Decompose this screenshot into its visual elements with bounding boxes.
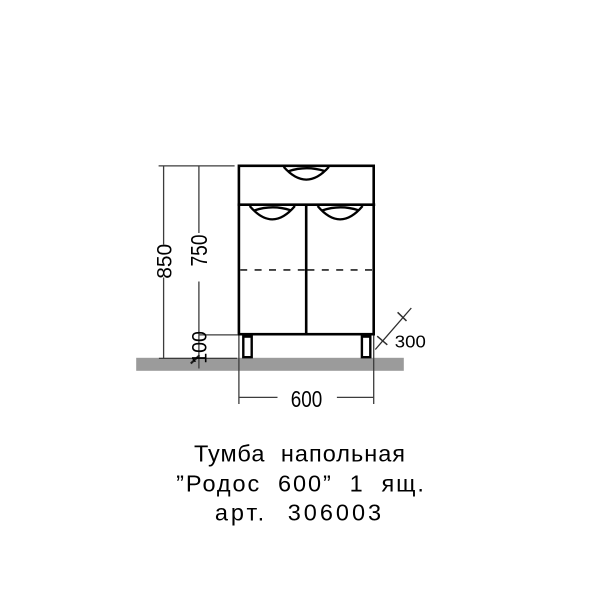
svg-text:100: 100 xyxy=(189,331,212,364)
svg-text:арт. 306003: арт. 306003 xyxy=(215,500,384,526)
svg-text:Тумба напольная: Тумба напольная xyxy=(194,441,406,467)
svg-text:”Родос 600” 1 ящ.: ”Родос 600” 1 ящ. xyxy=(176,470,426,496)
svg-text:750: 750 xyxy=(186,235,212,267)
svg-text:300: 300 xyxy=(395,332,426,352)
svg-text:600: 600 xyxy=(291,386,323,412)
svg-text:850: 850 xyxy=(153,244,177,279)
